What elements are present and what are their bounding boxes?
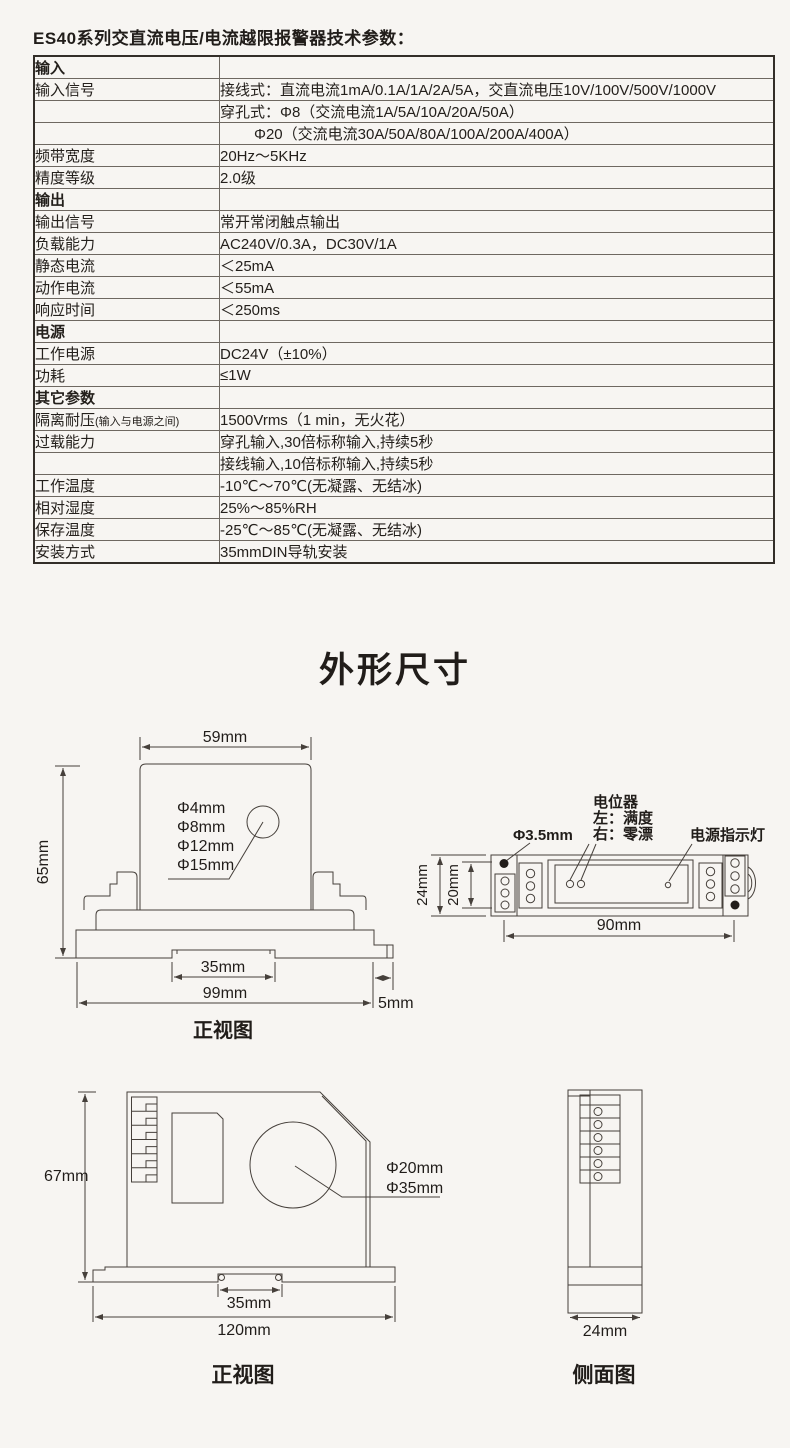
top-view-drawing: 电位器 左：满度 右：零漂 电源指示灯 Φ3.5mm xyxy=(414,793,765,942)
terminal-hole xyxy=(501,877,509,885)
spec-value: 1500Vrms（1 min，无火花） xyxy=(220,409,775,431)
dimension-drawings: 59mm Φ4mm Φ8mm Φ12mm Φ15mm xyxy=(0,690,790,1448)
spec-value: -10℃～70℃(无凝露、无结冰) xyxy=(220,475,775,497)
leader-line xyxy=(570,844,589,880)
spec-value: 接线式：直流电流1mA/0.1A/1A/2A/5A，交直流电压10V/100V/… xyxy=(220,79,775,101)
dim-label: 90mm xyxy=(597,917,641,934)
terminal-screw xyxy=(594,1173,602,1181)
table-row: 隔离耐压(输入与电源之间)1500Vrms（1 min，无火花） xyxy=(34,409,774,431)
table-row: 输入信号接线式：直流电流1mA/0.1A/1A/2A/5A，交直流电压10V/1… xyxy=(34,79,774,101)
dim-65mm: 65mm xyxy=(35,766,80,958)
table-row: 精度等级2.0级 xyxy=(34,167,774,189)
spec-value: -25℃～85℃(无凝露、无结冰) xyxy=(220,519,775,541)
spec-label: 精度等级 xyxy=(34,167,220,189)
table-row: 功耗≤1W xyxy=(34,365,774,387)
leader-line xyxy=(581,844,596,880)
spec-value xyxy=(220,321,775,343)
dim-120mm: 120mm xyxy=(93,1286,395,1339)
spec-value xyxy=(220,189,775,211)
table-row: 接线输入,10倍标称输入,持续5秒 xyxy=(34,453,774,475)
dim-label: 120mm xyxy=(217,1322,270,1339)
spec-label: 静态电流 xyxy=(34,255,220,277)
table-row: 工作温度-10℃～70℃(无凝露、无结冰) xyxy=(34,475,774,497)
spec-value: 穿孔输入,30倍标称输入,持续5秒 xyxy=(220,431,775,453)
spec-label: 保存温度 xyxy=(34,519,220,541)
datasheet-page: ES40系列交直流电压/电流越限报警器技术参数： 输入 输入信号接线式：直流电流… xyxy=(0,0,790,1448)
terminal-hole xyxy=(706,880,714,888)
table-row: 输入 xyxy=(34,56,774,79)
spec-value: 常开常闭触点输出 xyxy=(220,211,775,233)
dim-67mm: 67mm xyxy=(44,1092,96,1282)
table-row: 频带宽度20Hz～5KHz xyxy=(34,145,774,167)
terminal-screw xyxy=(594,1108,602,1116)
spec-value: 穿孔式：Φ8（交流电流1A/5A/10A/20A/50A） xyxy=(220,101,775,123)
terminal-hole xyxy=(731,885,739,893)
spec-value: 25%～85%RH xyxy=(220,497,775,519)
dim-label: 59mm xyxy=(203,729,247,746)
dim-35mm: 35mm xyxy=(218,1284,282,1312)
terminal-hole xyxy=(706,892,714,900)
terminal-hole xyxy=(526,894,534,902)
spec-label: 输入信号 xyxy=(34,79,220,101)
spec-label: 工作温度 xyxy=(34,475,220,497)
front-view-large-caption: 正视图 xyxy=(212,1363,275,1387)
spec-label: 频带宽度 xyxy=(34,145,220,167)
device-base xyxy=(76,930,393,958)
spec-value xyxy=(220,387,775,409)
spec-label: 相对湿度 xyxy=(34,497,220,519)
table-row: 输出 xyxy=(34,189,774,211)
spec-label-note: (输入与电源之间) xyxy=(95,416,179,428)
center-panel xyxy=(548,860,693,908)
table-row: 负载能力AC240V/0.3A，DC30V/1A xyxy=(34,233,774,255)
spec-value: 20Hz～5KHz xyxy=(220,145,775,167)
terminal-hole xyxy=(731,859,739,867)
side-view-caption: 侧面图 xyxy=(573,1363,636,1387)
spec-value: DC24V（±10%） xyxy=(220,343,775,365)
spec-label: 工作电源 xyxy=(34,343,220,365)
spec-value: ＜25mA xyxy=(220,255,775,277)
table-row: 响应时间＜250ms xyxy=(34,299,774,321)
potentiometer-fullscale xyxy=(566,880,573,887)
terminal-hole xyxy=(501,889,509,897)
front-view-small-caption: 正视图 xyxy=(193,1019,253,1042)
spec-value: Φ20（交流电流30A/50A/80A/100A/200A/400A） xyxy=(220,123,775,145)
power-led xyxy=(665,882,670,887)
dim-label: 35mm xyxy=(201,959,245,976)
page-title: ES40系列交直流电压/电流越限报警器技术参数： xyxy=(33,24,414,49)
terminal-screw xyxy=(594,1134,602,1142)
terminal-screw xyxy=(594,1121,602,1129)
din-clip-right xyxy=(313,872,366,910)
dim-label: 99mm xyxy=(203,985,247,1002)
table-row: 过载能力穿孔输入,30倍标称输入,持续5秒 xyxy=(34,431,774,453)
dim-35mm: 35mm xyxy=(172,959,275,982)
power-led-label: 电源指示灯 xyxy=(690,826,765,844)
spec-label: 响应时间 xyxy=(34,299,220,321)
hole-size-label: Φ15mm xyxy=(177,857,234,874)
dim-90mm: 90mm xyxy=(504,917,734,942)
table-row: 工作电源DC24V（±10%） xyxy=(34,343,774,365)
dim-label: 20mm xyxy=(445,864,462,906)
spec-label xyxy=(34,453,220,475)
mounting-hole xyxy=(500,859,509,868)
leader-line xyxy=(506,843,530,861)
spec-section-label: 其它参数 xyxy=(34,387,220,409)
hole-size-label: Φ35mm xyxy=(386,1180,443,1197)
dim-label: 65mm xyxy=(35,840,52,884)
din-clip-left xyxy=(84,872,137,910)
mount-hole-label: Φ3.5mm xyxy=(513,827,573,844)
table-row: 安装方式35mmDIN导轨安装 xyxy=(34,541,774,564)
terminal-screw xyxy=(594,1160,602,1168)
hole-size-label: Φ12mm xyxy=(177,838,234,855)
spec-table: 输入 输入信号接线式：直流电流1mA/0.1A/1A/2A/5A，交直流电压10… xyxy=(33,55,775,564)
device-shoulder xyxy=(96,910,354,930)
side-view-drawing: 24mm 侧面图 xyxy=(568,1090,642,1387)
leader-line xyxy=(669,844,692,881)
spec-value: 2.0级 xyxy=(220,167,775,189)
dim-59mm: 59mm xyxy=(140,729,311,760)
device-side-body xyxy=(568,1090,642,1313)
spec-section-label: 电源 xyxy=(34,321,220,343)
terminal-hole xyxy=(526,882,534,890)
spec-label: 动作电流 xyxy=(34,277,220,299)
spec-label: 负载能力 xyxy=(34,233,220,255)
terminal-hole xyxy=(526,869,534,877)
through-hole xyxy=(250,1122,336,1208)
hole-size-label: Φ8mm xyxy=(177,819,225,836)
spec-value: ≤1W xyxy=(220,365,775,387)
front-view-small-drawing: 59mm Φ4mm Φ8mm Φ12mm Φ15mm xyxy=(35,729,414,1042)
mounting-hole xyxy=(731,901,740,910)
terminal-block xyxy=(699,863,722,908)
dim-label: 35mm xyxy=(227,1295,271,1312)
spec-label: 隔离耐压(输入与电源之间) xyxy=(34,409,220,431)
potentiometer-zero xyxy=(577,880,584,887)
terminal-hole xyxy=(706,867,714,875)
spec-label: 过载能力 xyxy=(34,431,220,453)
dim-label: 24mm xyxy=(414,864,431,906)
spec-label: 安装方式 xyxy=(34,541,220,564)
spec-value: AC240V/0.3A，DC30V/1A xyxy=(220,233,775,255)
table-row: 保存温度-25℃～85℃(无凝露、无结冰) xyxy=(34,519,774,541)
spec-label: 功耗 xyxy=(34,365,220,387)
dim-label: 67mm xyxy=(44,1168,88,1185)
front-view-large-drawing: Φ20mm Φ35mm 67mm 35mm xyxy=(44,1092,443,1387)
terminal-hole xyxy=(501,901,509,909)
terminal-block xyxy=(580,1095,620,1183)
table-row: Φ20（交流电流30A/50A/80A/100A/200A/400A） xyxy=(34,123,774,145)
potentiometer-right-label: 右：零漂 xyxy=(593,825,653,843)
spec-value: 35mmDIN导轨安装 xyxy=(220,541,775,564)
hole-size-label: Φ4mm xyxy=(177,800,225,817)
table-row: 输出信号常开常闭触点输出 xyxy=(34,211,774,233)
potentiometer-label: 电位器 xyxy=(593,793,639,811)
spec-value: ＜250ms xyxy=(220,299,775,321)
spec-label xyxy=(34,123,220,145)
spec-value: 接线输入,10倍标称输入,持续5秒 xyxy=(220,453,775,475)
dim-20mm: 20mm xyxy=(445,862,492,908)
spec-label-main: 隔离耐压 xyxy=(35,412,95,429)
spec-value xyxy=(220,56,775,79)
dim-5mm: 5mm xyxy=(375,962,414,1012)
hole-size-label: Φ20mm xyxy=(386,1160,443,1177)
dim-24mm: 24mm xyxy=(570,1318,640,1341)
table-row: 其它参数 xyxy=(34,387,774,409)
table-row: 相对湿度25%～85%RH xyxy=(34,497,774,519)
device-top-body xyxy=(491,855,748,916)
table-row: 动作电流＜55mA xyxy=(34,277,774,299)
device-body xyxy=(140,764,311,910)
table-row: 静态电流＜25mA xyxy=(34,255,774,277)
device-base xyxy=(93,1267,395,1282)
section-title: 外形尺寸 xyxy=(0,642,790,693)
table-row: 穿孔式：Φ8（交流电流1A/5A/10A/20A/50A） xyxy=(34,101,774,123)
terminal-hole xyxy=(731,872,739,880)
terminal-screw xyxy=(594,1147,602,1155)
potentiometer-left-label: 左：满度 xyxy=(592,809,654,827)
spec-label: 输出信号 xyxy=(34,211,220,233)
label-plate xyxy=(172,1113,223,1203)
spec-section-label: 输入 xyxy=(34,56,220,79)
spec-label xyxy=(34,101,220,123)
dim-label: 24mm xyxy=(583,1323,627,1340)
table-row: 电源 xyxy=(34,321,774,343)
dim-label: 5mm xyxy=(378,995,414,1012)
terminal-block xyxy=(132,1097,158,1182)
spec-value: ＜55mA xyxy=(220,277,775,299)
spec-section-label: 输出 xyxy=(34,189,220,211)
